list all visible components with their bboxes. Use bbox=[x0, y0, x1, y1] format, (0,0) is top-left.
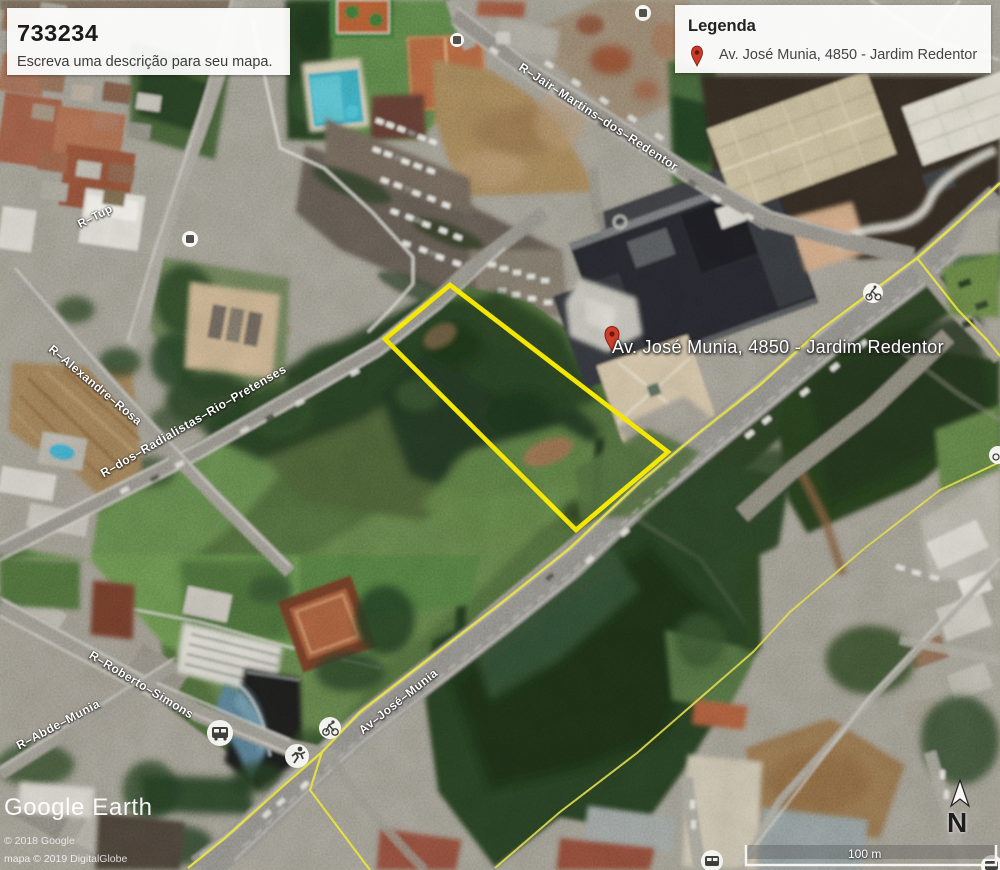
svg-text:N: N bbox=[947, 807, 967, 838]
